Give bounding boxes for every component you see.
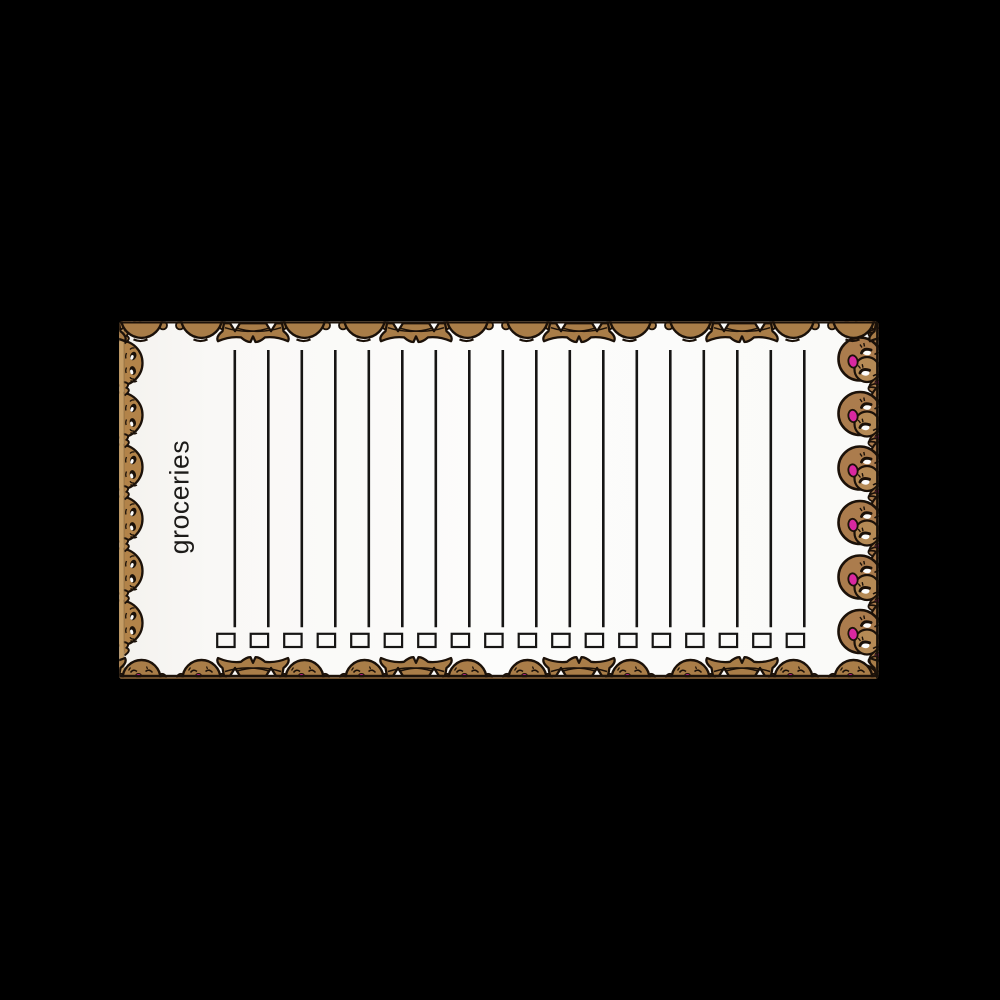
svg-text:groceries: groceries	[165, 440, 195, 554]
